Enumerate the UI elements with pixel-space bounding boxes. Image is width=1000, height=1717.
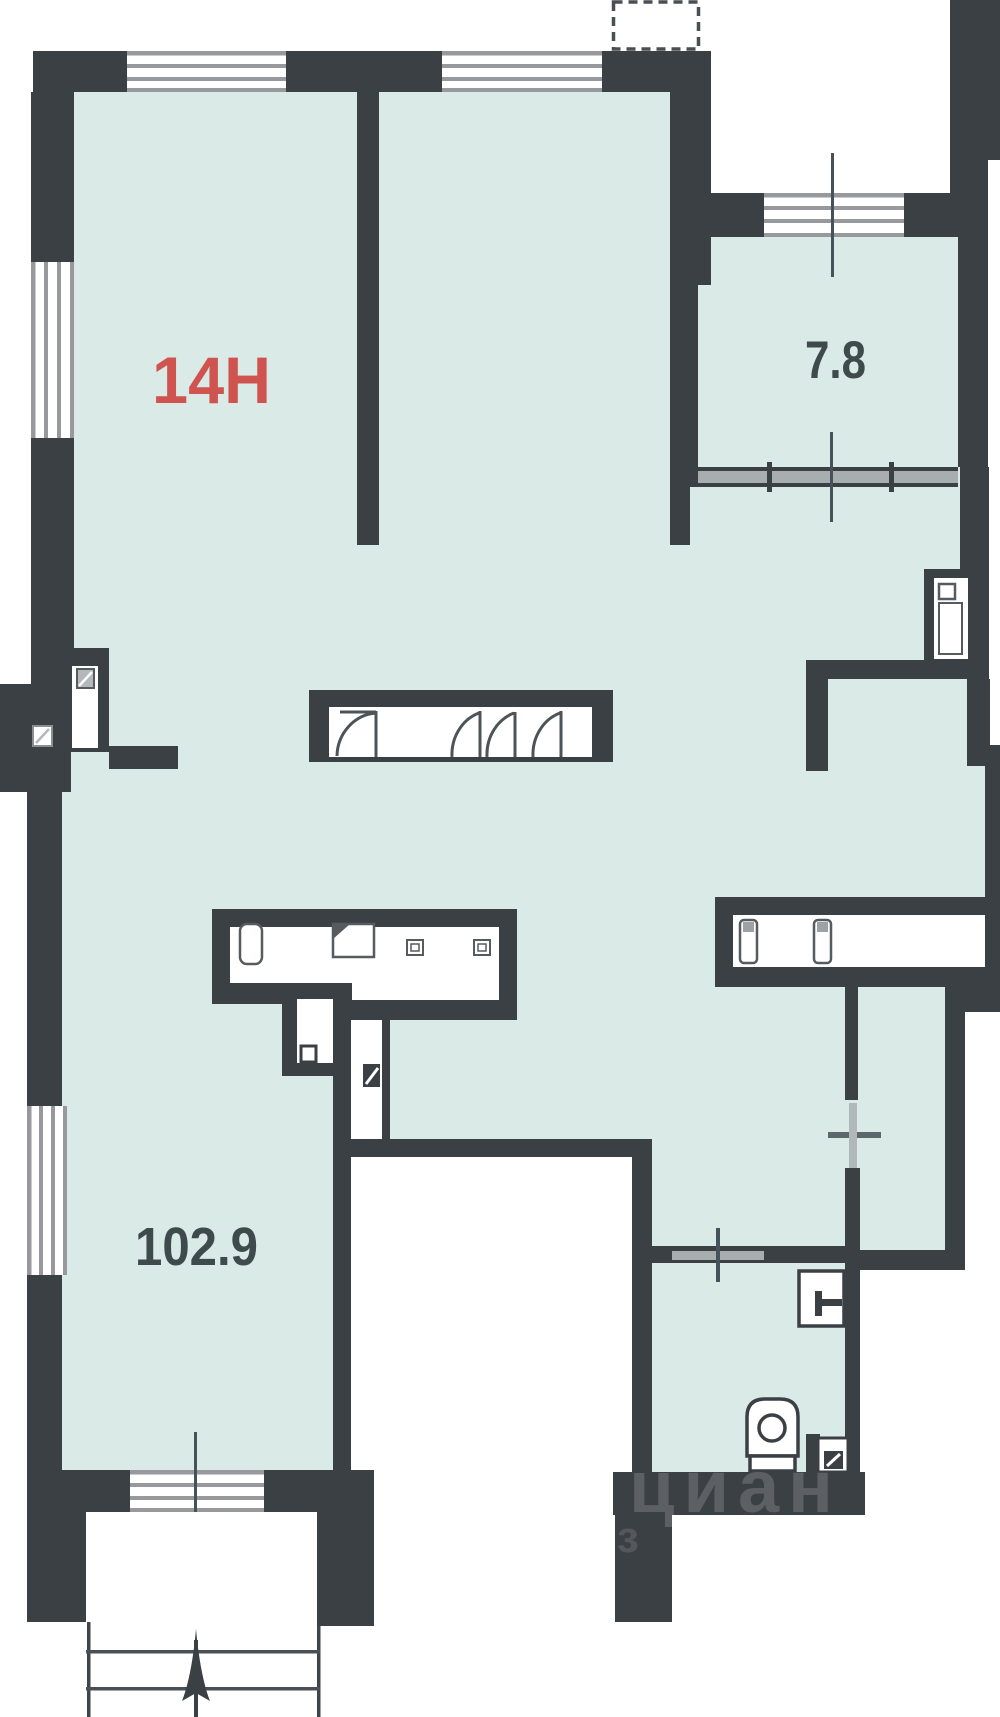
- svg-text:102.9: 102.9: [135, 1217, 258, 1277]
- svg-text:з: з: [617, 1513, 639, 1562]
- svg-text:циан: циан: [629, 1445, 842, 1528]
- svg-text:14Н: 14Н: [152, 343, 271, 417]
- svg-text:7.8: 7.8: [805, 331, 866, 390]
